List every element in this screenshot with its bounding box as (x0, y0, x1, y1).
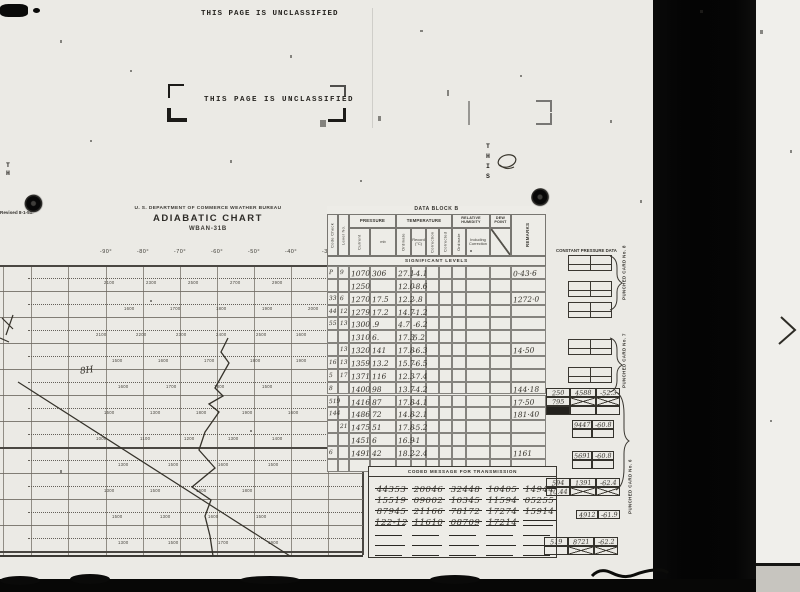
coded-blank-line (486, 555, 513, 556)
subheader-correction: Correction (426, 228, 439, 256)
coded-blank-line (449, 555, 476, 556)
punched-entry-cell: -52.3 (596, 388, 620, 397)
stamp-text: THIS PAGE IS UNCLASSIFIED (204, 96, 354, 104)
height-value-label: 1900 (296, 358, 307, 363)
chart-vline (3, 265, 4, 555)
handwritten-value: 6 (372, 436, 377, 445)
table-cell (452, 343, 466, 356)
table-cell (511, 369, 546, 382)
table-cell (426, 279, 439, 292)
table-cell: 13 (338, 317, 349, 330)
punched-entry-value: 795 (552, 397, 565, 406)
table-cell (439, 279, 452, 292)
table-cell: 4.7 (396, 317, 411, 330)
height-value-label: 2500 (256, 332, 267, 337)
height-value-label: 1500 (256, 514, 267, 519)
table-cell (490, 330, 511, 343)
table-cell (466, 305, 490, 318)
table-cell (327, 459, 338, 472)
adiabatic-chart-grid: -90°-80°-70°-60°-50°-40°-30°210023002500… (0, 246, 364, 560)
table-cell (338, 395, 349, 408)
table-cell: 17·50 (511, 395, 546, 408)
table-cell: 51 (370, 420, 396, 433)
chart-hline (0, 499, 363, 500)
film-speck (760, 30, 763, 34)
col-header-code-check: Code Check (327, 214, 338, 256)
film-speck (290, 55, 292, 58)
film-speck (520, 75, 522, 77)
height-tick-row (28, 512, 362, 513)
height-value-label: 1600 (296, 332, 307, 337)
height-value-label: 1800 (214, 384, 225, 389)
table-cell (426, 266, 439, 279)
table-cell (439, 317, 452, 330)
handwritten-value: 13 (340, 359, 348, 366)
handwritten-value: 87 (372, 397, 382, 406)
punched-entry-cell: 250 (546, 388, 570, 397)
table-cell (426, 446, 439, 459)
table-cell: 8 (327, 382, 338, 395)
table-cell (466, 446, 490, 459)
table-cell (439, 369, 452, 382)
film-speck (640, 200, 642, 203)
adjacent-page-sliver (756, 0, 800, 563)
handwritten-value: 1400 (351, 384, 370, 394)
table-cell: 1400 (349, 382, 370, 395)
handwritten-value: 51 (372, 423, 382, 432)
film-speck (420, 30, 423, 32)
film-speck (230, 160, 232, 163)
handwritten-value: 33 (329, 295, 337, 302)
table-cell: 181·40 (511, 407, 546, 420)
table-cell (490, 279, 511, 292)
table-cell (466, 292, 490, 305)
punched-entry-cell: 10.44 (546, 487, 570, 496)
table-cell (452, 446, 466, 459)
table-cell (338, 433, 349, 446)
coded-group: 32448 (449, 479, 482, 489)
page-edge-shadow (756, 566, 800, 592)
table-cell: 5 (327, 369, 338, 382)
chart-hline (0, 551, 363, 553)
table-cell (511, 420, 546, 433)
subheader-rh-ordinate: Ordinate (452, 228, 466, 256)
punched-entry-cell (596, 397, 620, 406)
height-value-label: 1500 (262, 384, 273, 389)
coded-message-block: CODED MESSAGE FOR TRANSMISSION 443532004… (368, 466, 557, 558)
table-cell: 14.8 (396, 407, 411, 420)
coded-group-value: 11610 (414, 518, 444, 528)
punch-hole-icon (24, 194, 45, 215)
box-line (590, 303, 591, 317)
box-line (590, 368, 591, 382)
handwritten-value: 4.7 (398, 320, 410, 329)
height-value-label: 1600 (118, 384, 129, 389)
table-cell: 1486 (349, 407, 370, 420)
table-cell: 13 (338, 356, 349, 369)
table-cell: 27.1 (396, 266, 411, 279)
chart-hline (0, 421, 363, 422)
punched-entry-cell: -60.8 (592, 420, 614, 429)
stamp-fragment-icon (536, 100, 552, 112)
table-cell (452, 420, 466, 433)
handwritten-value: 17.5 (372, 294, 389, 304)
subheader-current: Current (349, 228, 370, 256)
table-cell (466, 330, 490, 343)
coded-blank-line (375, 525, 405, 526)
coded-blank-line (375, 535, 402, 536)
table-cell: 55 (327, 317, 338, 330)
table-cell (466, 382, 490, 395)
film-strip-band (653, 0, 756, 592)
handwritten-value: 1279 (351, 307, 370, 317)
height-tick-row (28, 538, 362, 539)
margin-letters: T H (6, 162, 10, 178)
table-cell (439, 407, 452, 420)
table-cell (466, 369, 490, 382)
handwritten-value: 1359 (351, 359, 370, 369)
punched-entry-cell: -61.9 (598, 510, 620, 519)
handwritten-value: 16 (329, 359, 337, 366)
height-value-label: 1500 (150, 488, 161, 493)
table-cell (511, 279, 546, 292)
handwritten-value: 181·40 (513, 410, 540, 420)
height-value-label: 1800 (242, 488, 253, 493)
film-speck (610, 120, 612, 123)
table-cell (426, 407, 439, 420)
table-cell: 6. (370, 330, 396, 343)
punched-entry-cell (570, 487, 596, 496)
handwritten-value: 13 (340, 346, 348, 353)
table-cell (439, 343, 452, 356)
coded-blank-line (449, 525, 479, 526)
table-cell: 141 (370, 343, 396, 356)
punched-entry-cell (544, 546, 568, 555)
coded-blank-line (523, 525, 553, 526)
subheader-corrected: Corrected (439, 228, 452, 256)
chart-hline (0, 369, 363, 370)
punched-entry-value: 1391 (575, 478, 592, 487)
handwritten-value: 1371 (351, 371, 370, 381)
agency-name: U. S. DEPARTMENT OF COMMERCE WEATHER BUR… (118, 206, 298, 211)
punched-entry-value: 4588 (575, 388, 592, 397)
table-cell (490, 446, 511, 459)
punched-entry-value: -60.8 (594, 420, 611, 429)
table-cell: 17.3 (396, 330, 411, 343)
table-cell (452, 266, 466, 279)
temp-axis-label: -80° (129, 249, 157, 255)
handwritten-value: 5 (329, 372, 333, 379)
height-value-label: 2900 (272, 280, 283, 285)
stamp-corner-bl-icon (167, 108, 187, 122)
table-cell: .9 (370, 317, 396, 330)
handwritten-value: 17·50 (513, 397, 535, 407)
table-cell (490, 292, 511, 305)
table-cell (452, 292, 466, 305)
punched-entry-cell (594, 546, 618, 555)
coded-blank-line (412, 555, 439, 556)
table-cell: 1320 (349, 343, 370, 356)
handwritten-value: 1250 (351, 282, 370, 292)
punched-entry-cell: 1391 (570, 478, 596, 487)
film-speck (378, 116, 381, 121)
chart-hline (0, 265, 363, 267)
height-value-label: 2100 (104, 280, 115, 285)
table-cell (452, 317, 466, 330)
table-cell: 13 (338, 343, 349, 356)
chart-hline (0, 343, 363, 344)
group-header-temperature: TEMPERATURE (396, 214, 452, 228)
table-cell: 98 (370, 382, 396, 395)
table-cell: -4.1 (411, 266, 426, 279)
punched-entry-cell: 519 (544, 537, 568, 546)
table-cell (327, 330, 338, 343)
stamp-fragment-icon (468, 101, 478, 125)
table-cell (490, 420, 511, 433)
temp-axis-label: -50° (240, 249, 268, 255)
table-cell (338, 407, 349, 420)
dew-point-diagonal-cell (490, 228, 511, 256)
table-cell: 14·50 (511, 343, 546, 356)
handwritten-value: 17.2 (372, 307, 389, 317)
table-cell: 144·18 (511, 382, 546, 395)
table-cell: 1475 (349, 420, 370, 433)
height-value-label: 1500 (104, 410, 115, 415)
classification-banner: THIS PAGE IS UNCLASSIFIED (201, 10, 339, 18)
punched-entry-cell (596, 487, 620, 496)
table-cell: -4.2 (411, 382, 426, 395)
stamp-fragment-icon (536, 113, 552, 125)
table-cell (327, 420, 338, 433)
table-cell: -.8 (411, 292, 426, 305)
coded-blank-line (523, 520, 556, 521)
coded-blank-line (449, 535, 476, 536)
table-cell: 16 (327, 356, 338, 369)
handwritten-value: 1272·0 (513, 294, 540, 304)
film-speck (447, 90, 449, 96)
punched-entry-value: 250 (552, 388, 565, 397)
handwritten-value: 13 (340, 320, 348, 327)
table-cell: -2.1 (411, 407, 426, 420)
height-tick-row (28, 434, 362, 435)
height-value-label: 1600 (218, 462, 229, 467)
table-cell (452, 279, 466, 292)
table-cell: 1270 (349, 292, 370, 305)
punched-entry-value: 519 (550, 537, 563, 546)
coded-group: 17214 (486, 512, 519, 522)
coded-blank-line (523, 535, 550, 536)
chart-hline (0, 317, 363, 318)
height-value-label: 1700 (218, 540, 229, 545)
table-cell: 14.7 (396, 305, 411, 318)
table-cell: -2.4 (411, 446, 426, 459)
table-cell: 1279 (349, 305, 370, 318)
table-cell: 17.8 (396, 395, 411, 408)
punched-entry-value: 594 (552, 478, 565, 487)
table-cell: 16.9 (396, 433, 411, 446)
height-value-label: 1500 (112, 358, 123, 363)
punched-card-box (568, 302, 612, 318)
punched-card-8-label: PUNCHED CARD No. 8 (622, 241, 627, 305)
subheader-ordinate: Ordinate (396, 228, 411, 256)
height-value-label: 1800 (250, 358, 261, 363)
col-header-level-no: Level No. (338, 214, 349, 256)
table-cell: 72 (370, 407, 396, 420)
film-speck (700, 10, 703, 13)
handwritten-value: 6. (372, 333, 379, 342)
table-cell (490, 382, 511, 395)
table-cell: 13.7 (396, 382, 411, 395)
punched-entry-value: 8721 (573, 537, 590, 546)
height-tick-row (28, 408, 362, 409)
film-speck (360, 180, 362, 182)
height-value-label: 1300 (118, 462, 129, 467)
chart-hline (0, 447, 363, 449)
table-cell: 9 (338, 266, 349, 279)
coded-blank-line (412, 535, 439, 536)
table-cell: 1310 (349, 330, 370, 343)
table-cell (452, 407, 466, 420)
handwritten-value: 1451 (351, 436, 370, 446)
table-cell: 0·43·6 (511, 266, 546, 279)
height-value-label: 1500 (112, 514, 123, 519)
temp-axis-label: -90° (92, 249, 120, 255)
height-value-label: 1600 (124, 306, 135, 311)
table-cell (426, 317, 439, 330)
handwritten-value: 8 (329, 385, 333, 392)
height-value-label: 1900 (268, 540, 279, 545)
height-value-label: 1600 (208, 514, 219, 519)
film-speck (320, 120, 326, 127)
table-cell (452, 395, 466, 408)
punched-card-6-label: PUNCHED CARD No. 6 (628, 455, 633, 519)
height-value-label: 1300 (228, 436, 239, 441)
stamp-corner-br-icon (328, 108, 346, 122)
table-cell (490, 356, 511, 369)
table-cell (466, 279, 490, 292)
table-cell (490, 433, 511, 446)
height-value-label: 1200 (184, 436, 195, 441)
coded-group: 08709 (449, 512, 482, 522)
table-cell (426, 292, 439, 305)
table-cell: 12 (338, 305, 349, 318)
group-header-pressure: PRESSURE (349, 214, 396, 228)
coded-group: 17274 (486, 501, 519, 511)
page-title: ADIABATIC CHART (118, 213, 298, 224)
chart-hline (0, 291, 363, 292)
data-block-table: DATA BLOCK B Code Check Level No. PRESSU… (327, 206, 546, 472)
punched-card-box (568, 281, 612, 297)
punched-entry-value: -52.3 (599, 388, 616, 397)
height-value-label: 1300 (160, 514, 171, 519)
coded-group: 10405 (486, 479, 519, 489)
film-speck (60, 470, 62, 473)
handwritten-value: 13.2 (372, 359, 389, 369)
box-line (590, 282, 591, 296)
handwritten-value: 6 (340, 295, 344, 302)
table-cell: 17 (338, 369, 349, 382)
table-cell: -7.4 (411, 369, 426, 382)
table-cell: -6.5 (411, 356, 426, 369)
height-value-label: 1500 (268, 462, 279, 467)
table-cell (466, 407, 490, 420)
coded-blank-line (375, 545, 405, 546)
stamp-corner-tl-icon (168, 84, 184, 98)
coded-group: 122-12 (375, 512, 408, 522)
handwritten-value: 9 (340, 269, 344, 276)
handwritten-value: 1300 (351, 320, 370, 330)
film-speck (790, 150, 792, 153)
table-cell: 1451 (349, 433, 370, 446)
height-value-label: 1900 (262, 306, 273, 311)
table-cell: 17.2 (370, 305, 396, 318)
table-cell (439, 266, 452, 279)
temp-axis-label: -60° (203, 249, 231, 255)
table-cell (511, 305, 546, 318)
coded-blank-line (449, 545, 479, 546)
table-cell (490, 305, 511, 318)
paper-crease (372, 8, 373, 128)
table-cell: -8.6 (411, 279, 426, 292)
table-cell (452, 369, 466, 382)
coded-group: 10345 (449, 490, 482, 500)
table-cell: 5.2 (411, 330, 426, 343)
table-cell: 1359 (349, 356, 370, 369)
height-value-label: 1900 (242, 410, 253, 415)
table-cell (490, 266, 511, 279)
coded-blank-line (486, 535, 513, 536)
height-value-label: 1700 (166, 384, 177, 389)
punched-entry-cell: 8721 (568, 537, 594, 546)
table-cell: 12.2 (396, 292, 411, 305)
handwritten-value: 98 (372, 384, 382, 393)
table-cell (511, 317, 546, 330)
table-cell (511, 433, 546, 446)
table-cell (349, 459, 370, 472)
table-cell: 1371 (349, 369, 370, 382)
table-cell: 116 (370, 369, 396, 382)
table-cell (439, 356, 452, 369)
pen-scribble (497, 153, 517, 169)
table-cell: -1.2 (411, 305, 426, 318)
scanned-page: THIS PAGE IS UNCLASSIFIED THIS PAGE IS U… (0, 0, 800, 592)
handwritten-value: 17 (340, 372, 348, 379)
coded-group: 87945 (375, 501, 408, 511)
table-cell: 1070 (349, 266, 370, 279)
punched-entry-value: 10.44 (548, 487, 567, 496)
coded-blank-line (412, 545, 442, 546)
table-cell (439, 292, 452, 305)
table-cell: 17.5 (370, 292, 396, 305)
table-cell (327, 343, 338, 356)
table-cell: 21 (338, 420, 349, 433)
handwritten-value: P (329, 269, 333, 276)
handwritten-value: 14·50 (513, 346, 535, 356)
punched-entry-cell (570, 397, 596, 406)
height-value-label: 1500 (168, 462, 179, 467)
handwritten-mark: 8H (79, 365, 94, 377)
punched-entry-cell: -60.8 (592, 451, 614, 460)
table-cell (466, 395, 490, 408)
height-value-label: 2300 (176, 332, 187, 337)
film-speck (470, 250, 472, 252)
table-cell (511, 330, 546, 343)
height-tick-row (28, 460, 362, 461)
table-cell (466, 420, 490, 433)
table-cell (490, 369, 511, 382)
height-tick-row (28, 486, 362, 487)
punched-card-box (568, 339, 612, 355)
